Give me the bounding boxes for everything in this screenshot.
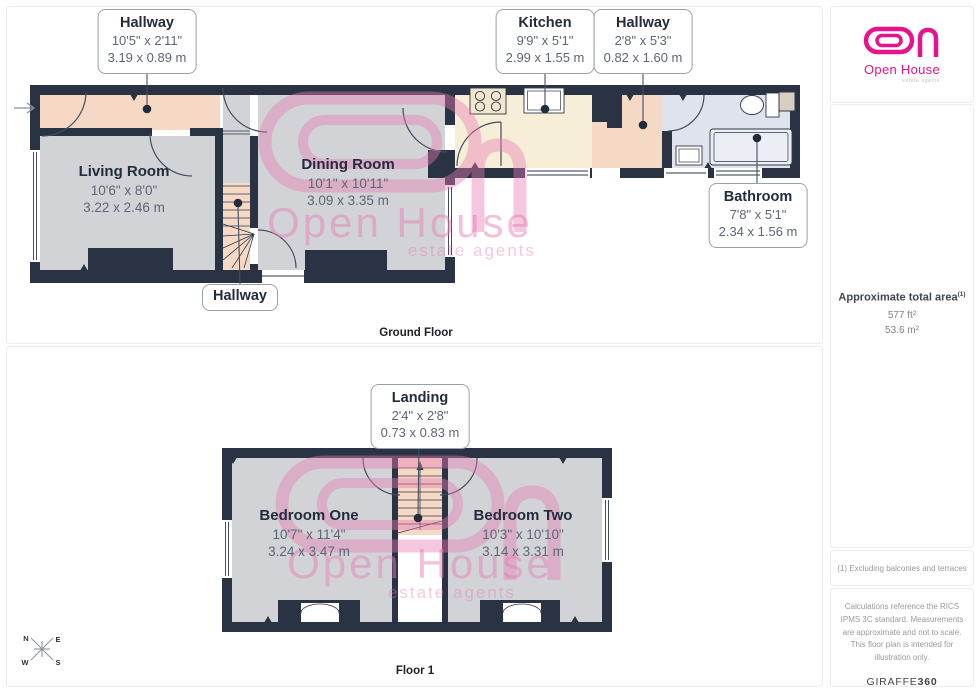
disclaimer-text: Calculations reference the RICS IPMS 3C …: [831, 589, 973, 665]
callout-hallway-stairs: Hallway: [202, 284, 278, 311]
compass-e: E: [55, 635, 60, 644]
total-area-label: Approximate total area: [838, 292, 957, 304]
callout-imperial: 7'8" x 5'1": [719, 207, 798, 224]
compass-s: S: [55, 658, 60, 667]
watermark-floor1-tagline: estate agents: [388, 583, 516, 602]
stove-icon: [470, 88, 506, 114]
callout-metric: 3.19 x 0.89 m: [108, 50, 187, 67]
room-title: Living Room: [79, 163, 170, 181]
total-area-ft: 577 ft²: [831, 310, 973, 321]
floorplan-drawing: Open House estate agents Open House esta…: [0, 0, 828, 693]
callout-hallway-rear: Hallway 2'8" x 5'3" 0.82 x 1.60 m: [594, 9, 693, 74]
floor1-caption: Floor 1: [396, 665, 434, 677]
room-label-dining: Dining Room 10'1" x 10'11" 3.09 x 3.35 m: [301, 156, 394, 209]
callout-kitchen: Kitchen 9'9" x 5'1" 2.99 x 1.55 m: [496, 9, 595, 74]
room-title: Dining Room: [301, 156, 394, 174]
open-house-logo-icon: [863, 25, 941, 61]
room-label-living: Living Room 10'6" x 8'0" 3.22 x 2.46 m: [79, 163, 170, 216]
callout-imperial: 9'9" x 5'1": [506, 33, 585, 50]
room-imperial: 10'7" x 11'4": [259, 527, 358, 544]
sidebar-footnote-card: (1) Excluding balconies and terraces: [830, 550, 974, 586]
floorplan-page: { "colors": { "wall": "#2a3343", "floor_…: [0, 0, 980, 693]
compass-n: N: [23, 634, 28, 643]
room-title: Bedroom Two: [474, 507, 573, 525]
room-title: Bedroom One: [259, 507, 358, 525]
room-metric: 3.22 x 2.46 m: [79, 200, 170, 217]
callout-title: Landing: [381, 389, 460, 408]
callout-metric: 2.34 x 1.56 m: [719, 224, 798, 241]
total-area-footnote-ref: (1): [958, 291, 966, 298]
ground-floor-caption: Ground Floor: [379, 327, 452, 339]
callout-title: Hallway: [604, 14, 683, 33]
footnote-text: (1) Excluding balconies and terraces: [837, 564, 966, 573]
callout-bathroom: Bathroom 7'8" x 5'1" 2.34 x 1.56 m: [709, 183, 808, 248]
total-area-m: 53.6 m²: [831, 325, 973, 336]
total-area-title: Approximate total area(1): [831, 291, 973, 304]
callout-imperial: 10'5" x 2'11": [108, 33, 187, 50]
callout-metric: 0.73 x 0.83 m: [381, 425, 460, 442]
watermark-ground-tagline: estate agents: [408, 241, 536, 260]
brand-suffix: 360: [918, 676, 938, 688]
callout-hallway-front: Hallway 10'5" x 2'11" 3.19 x 0.89 m: [98, 9, 197, 74]
brand-name: GIRAFFE: [866, 676, 917, 688]
callout-landing: Landing 2'4" x 2'8" 0.73 x 0.83 m: [371, 384, 470, 449]
room-label-bedroom-one: Bedroom One 10'7" x 11'4" 3.24 x 3.47 m: [259, 507, 358, 560]
logo-name: Open House: [864, 62, 940, 77]
room-metric: 3.14 x 3.31 m: [474, 544, 573, 561]
callout-title: Kitchen: [506, 14, 585, 33]
room-metric: 3.24 x 3.47 m: [259, 544, 358, 561]
callout-title: Bathroom: [719, 188, 798, 207]
room-imperial: 10'6" x 8'0": [79, 183, 170, 200]
callout-metric: 2.99 x 1.55 m: [506, 50, 585, 67]
giraffe360-brand: GIRAFFE360: [831, 676, 973, 688]
room-label-bedroom-two: Bedroom Two 10'3" x 10'10" 3.14 x 3.31 m: [474, 507, 573, 560]
logo-tagline: estate agents: [864, 78, 940, 84]
room-imperial: 10'1" x 10'11": [301, 176, 394, 193]
toilet-icon: [741, 96, 764, 115]
bathtub-icon: [710, 129, 792, 165]
compass-w: W: [21, 658, 29, 667]
sidebar-disclaimer-card: Calculations reference the RICS IPMS 3C …: [830, 588, 974, 687]
sidebar-logo-card: Open House estate agents: [830, 6, 974, 103]
callout-metric: 0.82 x 1.60 m: [604, 50, 683, 67]
callout-title: Hallway: [213, 287, 267, 306]
callout-title: Hallway: [108, 14, 187, 33]
room-metric: 3.09 x 3.35 m: [301, 193, 394, 210]
boiler-icon: [779, 92, 795, 111]
callout-imperial: 2'8" x 5'3": [604, 33, 683, 50]
callout-imperial: 2'4" x 2'8": [381, 408, 460, 425]
sidebar-area-card: Approximate total area(1) 577 ft² 53.6 m…: [830, 104, 974, 548]
room-imperial: 10'3" x 10'10": [474, 527, 573, 544]
compass-icon: N E W S: [21, 634, 60, 667]
